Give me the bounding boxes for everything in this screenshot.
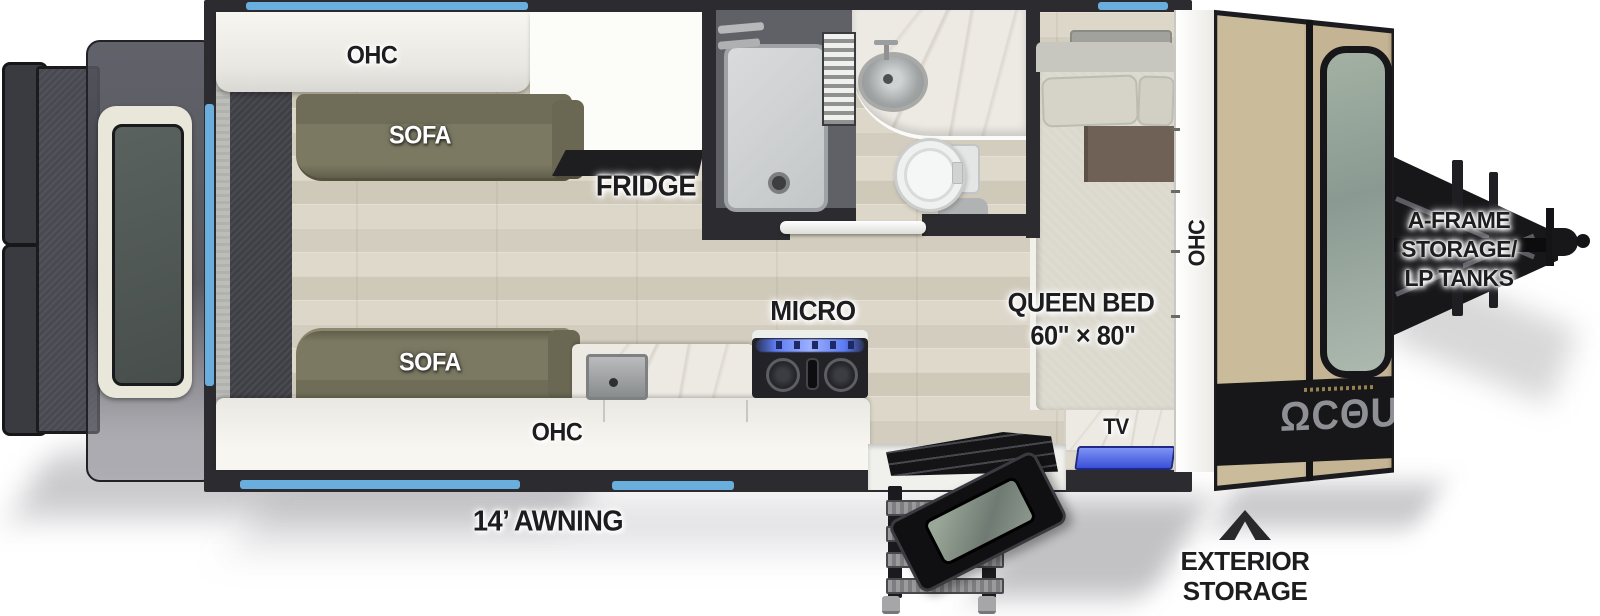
awning-rail-accent-bottom-right xyxy=(612,481,734,490)
front-cap-window xyxy=(1320,46,1392,378)
front-cap: ΩCΘU xyxy=(1214,6,1394,494)
bathroom-sink xyxy=(858,52,928,112)
label-a-frame-line2: STORAGE/ xyxy=(1391,235,1527,264)
cabinet-seam xyxy=(746,400,748,422)
label-awning: 14’ AWNING xyxy=(473,506,623,539)
label-a-frame-storage: A-FRAME STORAGE/ LP TANKS xyxy=(1391,206,1527,293)
label-ohc-front: OHC xyxy=(1184,220,1211,267)
accent-left-vertical xyxy=(205,104,214,386)
label-a-frame-line1: A-FRAME xyxy=(1391,206,1527,235)
awning-rail-accent-bottom-left xyxy=(240,480,520,489)
bathroom-bottom-wall-right xyxy=(922,214,1040,236)
label-exterior-line1: EXTERIOR xyxy=(1167,546,1323,576)
kitchen-sink xyxy=(586,354,648,400)
front-cap-brand-glyphs: ΩCΘU xyxy=(1280,391,1388,442)
label-queen-bed: QUEEN BED xyxy=(1008,288,1155,319)
hitch-coupler xyxy=(1552,228,1578,256)
label-queen-bed-size: 60" × 80" xyxy=(1030,321,1135,352)
hitch-ball-icon xyxy=(1576,234,1590,248)
label-ohc-top: OHC xyxy=(347,42,398,71)
label-micro: MICRO xyxy=(770,295,855,327)
bathroom-bottom-wall-left xyxy=(702,222,790,240)
label-fridge: FRIDGE xyxy=(596,171,696,204)
bathroom-sliding-door xyxy=(780,221,926,234)
label-exterior-line2: STORAGE xyxy=(1167,576,1323,606)
bed-head-bolster xyxy=(1036,42,1174,72)
faucet-handle-icon xyxy=(874,40,898,45)
label-ohc-bottom: OHC xyxy=(532,419,583,448)
shower-accordion-door xyxy=(822,32,856,126)
stove-burner-icon xyxy=(766,358,800,392)
tv-screen xyxy=(1074,446,1175,470)
stove-knob-row xyxy=(764,341,858,349)
pillow xyxy=(1137,75,1175,126)
rear-window xyxy=(112,124,184,386)
front-cap-brand-band: ΩCΘU xyxy=(1216,376,1392,466)
entry-step-foot xyxy=(978,596,996,614)
toilet-seat xyxy=(904,148,956,202)
stove-burner-icon xyxy=(824,358,858,392)
shower-drain-icon xyxy=(768,172,790,194)
pillow xyxy=(1041,74,1139,127)
kitchen-sink-drain-icon xyxy=(609,378,618,387)
label-sofa-top: SOFA xyxy=(389,122,451,151)
label-tv: TV xyxy=(1103,414,1128,440)
entry-step-foot xyxy=(882,596,900,614)
awning-rail-accent-top-left xyxy=(246,2,528,10)
hinge-tick xyxy=(1171,250,1180,253)
hinge-tick xyxy=(1171,128,1180,131)
sink-drain-icon xyxy=(883,74,893,84)
bed-blanket xyxy=(1084,126,1178,182)
floorplan-scene: ΩCΘU OHC SOFA FRIDGE MICRO QUEEN BED 60"… xyxy=(0,0,1600,616)
hinge-tick xyxy=(1171,190,1180,193)
bathroom-left-wall xyxy=(702,10,716,240)
cabinet-seam xyxy=(603,400,605,422)
toilet-hinge xyxy=(952,162,963,184)
stove-center-slot xyxy=(806,358,819,390)
awning-rail-accent-top-right xyxy=(1098,2,1168,10)
hinge-tick xyxy=(1171,315,1180,318)
label-sofa-bottom: SOFA xyxy=(399,349,461,378)
label-exterior-storage: EXTERIOR STORAGE xyxy=(1167,546,1323,606)
label-a-frame-line3: LP TANKS xyxy=(1391,264,1527,293)
